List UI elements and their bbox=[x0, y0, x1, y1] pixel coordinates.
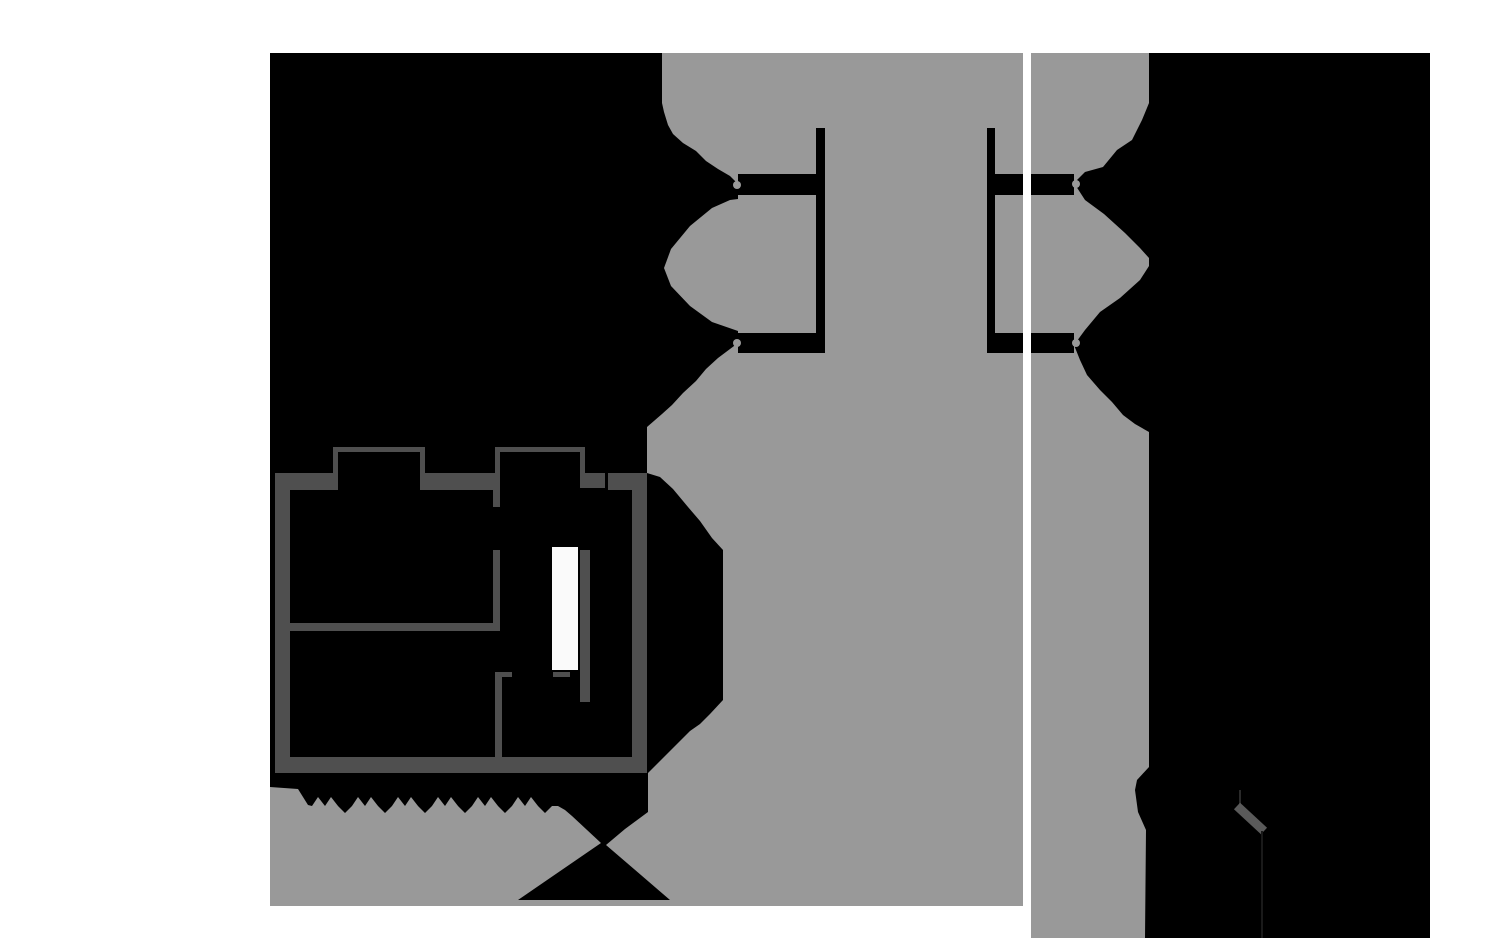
right-faint-wall-lower bbox=[1261, 831, 1263, 938]
map-canvas bbox=[0, 0, 1500, 938]
wall-L-stub bbox=[495, 672, 512, 677]
right-corridor-arm-top bbox=[1031, 174, 1074, 195]
right-neck-nub-top bbox=[1072, 180, 1080, 188]
left-neck-nub-bottom bbox=[733, 339, 741, 347]
bump2-wall-top bbox=[495, 447, 585, 452]
left-neck-nub-top bbox=[733, 181, 741, 189]
bump1-wall-top bbox=[333, 447, 425, 452]
wall-L-vertical bbox=[495, 672, 502, 757]
wall-outer-left bbox=[275, 473, 290, 773]
wall-top-mid bbox=[420, 473, 500, 490]
bump1-wall-right bbox=[420, 447, 425, 473]
wall-door-stub bbox=[553, 672, 570, 677]
wall-outer-bottom bbox=[275, 757, 647, 773]
wall-mid-horizontal bbox=[290, 623, 497, 631]
right-corridor-arm-bottom bbox=[1031, 333, 1074, 353]
wall-vertical-stub bbox=[493, 490, 500, 507]
wall-beside-door bbox=[580, 550, 590, 702]
wall-outer-right bbox=[632, 473, 647, 773]
door-highlight-panel bbox=[552, 547, 578, 670]
wall-top-chunk bbox=[580, 473, 605, 488]
wall-top-left bbox=[275, 473, 338, 490]
wall-vertical-mid bbox=[493, 550, 500, 631]
map-viewer bbox=[0, 0, 1500, 938]
bump2-wall-right bbox=[580, 447, 585, 473]
right-neck-nub-bottom bbox=[1072, 339, 1080, 347]
